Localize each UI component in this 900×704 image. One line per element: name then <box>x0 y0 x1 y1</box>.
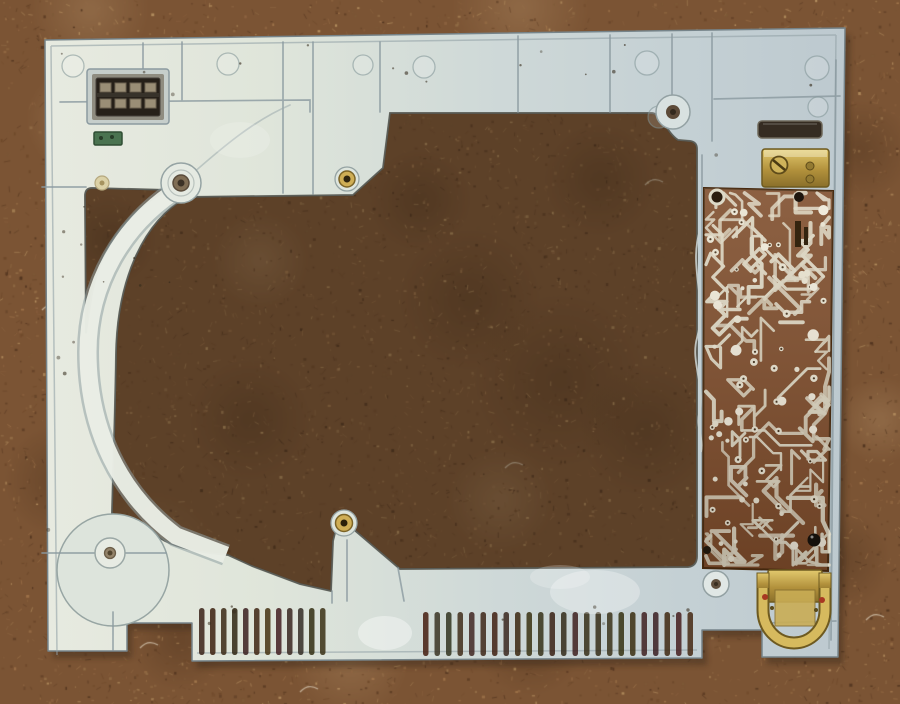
dirt-speck <box>46 528 50 532</box>
screw-boss-bottom-left <box>95 538 125 568</box>
dirt-speck <box>540 50 543 53</box>
dirt-speck <box>63 372 67 376</box>
dirt-speck <box>518 649 521 652</box>
vent-slot <box>254 608 260 655</box>
screw-boss-bottom-right <box>703 571 729 597</box>
dirt-speck <box>62 230 65 233</box>
vent-slot <box>504 612 510 656</box>
connector-socket <box>87 69 169 124</box>
vent-slot <box>688 612 694 656</box>
dirt-speck <box>143 71 146 74</box>
dirt-speck <box>714 153 718 157</box>
dirt-speck <box>425 81 427 83</box>
screw-boss-wing <box>161 163 201 203</box>
vent-slot <box>265 608 271 655</box>
vent-slot <box>607 612 613 656</box>
pcb-component-dot <box>703 546 711 554</box>
vent-slot <box>298 608 304 655</box>
circuit-board <box>695 188 833 571</box>
red-paint-mark <box>819 597 825 603</box>
vent-slot <box>596 612 602 656</box>
dirt-speck <box>61 53 63 55</box>
green-pcb-fragment <box>94 132 122 145</box>
dirt-speck <box>519 64 521 66</box>
vent-slot <box>276 608 282 655</box>
dirt-speck <box>239 62 241 64</box>
brass-bracket <box>762 149 829 187</box>
dirt-speck <box>672 615 674 617</box>
vent-slot <box>469 612 475 656</box>
vent-slot <box>584 612 590 656</box>
pcb-component-dot <box>808 534 821 547</box>
vent-slot <box>630 612 636 656</box>
dirt-speck <box>231 605 233 607</box>
dirt-speck <box>405 71 409 75</box>
vent-slot <box>676 612 682 656</box>
dirt-speck <box>624 44 626 46</box>
vent-slot <box>538 612 544 656</box>
vent-slot <box>199 608 205 655</box>
corner-round-pad <box>57 514 169 626</box>
cream-insert-left-rail <box>95 176 109 190</box>
brass-insert-wing <box>335 167 359 191</box>
dirt-speck <box>502 619 504 621</box>
dirt-speck <box>169 281 171 283</box>
vent-slot <box>481 612 487 656</box>
dirt-speck <box>585 74 587 76</box>
dirt-speck <box>103 281 105 283</box>
dirt-speck <box>171 93 175 97</box>
vent-slot <box>527 612 533 656</box>
vent-slot <box>653 612 659 656</box>
vent-slot <box>642 612 648 656</box>
vent-slot <box>561 612 567 656</box>
dirt-speck <box>593 605 596 608</box>
vent-slot <box>665 612 671 656</box>
dirt-speck <box>139 284 142 287</box>
vent-slot <box>550 612 556 656</box>
vent-slot <box>435 612 441 656</box>
vent-slot <box>423 612 429 656</box>
vent-slot <box>492 612 498 656</box>
pcb-label-strip <box>804 227 808 245</box>
vent-slot <box>287 608 293 655</box>
pcb-component-dot <box>794 192 804 202</box>
red-paint-mark <box>762 594 768 600</box>
vent-slot <box>210 608 216 655</box>
pcb-corner-hole <box>710 190 724 204</box>
photo <box>0 0 900 704</box>
dirt-speck <box>602 622 605 625</box>
vent-slot <box>221 608 227 655</box>
dirt-speck <box>208 622 211 625</box>
vent-slot <box>619 612 625 656</box>
vent-slot <box>320 608 326 655</box>
dirt-speck <box>612 70 616 74</box>
pcb-label-strip <box>795 221 801 247</box>
photo-scene <box>0 0 900 704</box>
vent-slot <box>573 612 579 656</box>
dirt-speck <box>686 608 689 611</box>
vent-slot <box>446 612 452 656</box>
dirt-speck <box>809 84 812 87</box>
brass-insert-gusset <box>331 510 357 536</box>
dirt-speck <box>307 44 309 46</box>
vent-slot <box>243 608 249 655</box>
dirt-speck <box>392 67 394 69</box>
vent-slot <box>458 612 464 656</box>
vent-slot <box>515 612 521 656</box>
dirt-speck <box>80 243 82 245</box>
screw-boss-top-right <box>656 95 690 129</box>
top-slot-opening <box>758 121 822 138</box>
vent-slot <box>309 608 315 655</box>
dirt-speck <box>232 609 236 613</box>
dirt-speck <box>62 276 64 278</box>
dirt-speck <box>57 356 61 360</box>
dirt-speck <box>72 341 75 344</box>
dirt-speck <box>83 206 85 208</box>
vent-slot <box>232 608 238 655</box>
dirt-speck <box>133 257 135 259</box>
